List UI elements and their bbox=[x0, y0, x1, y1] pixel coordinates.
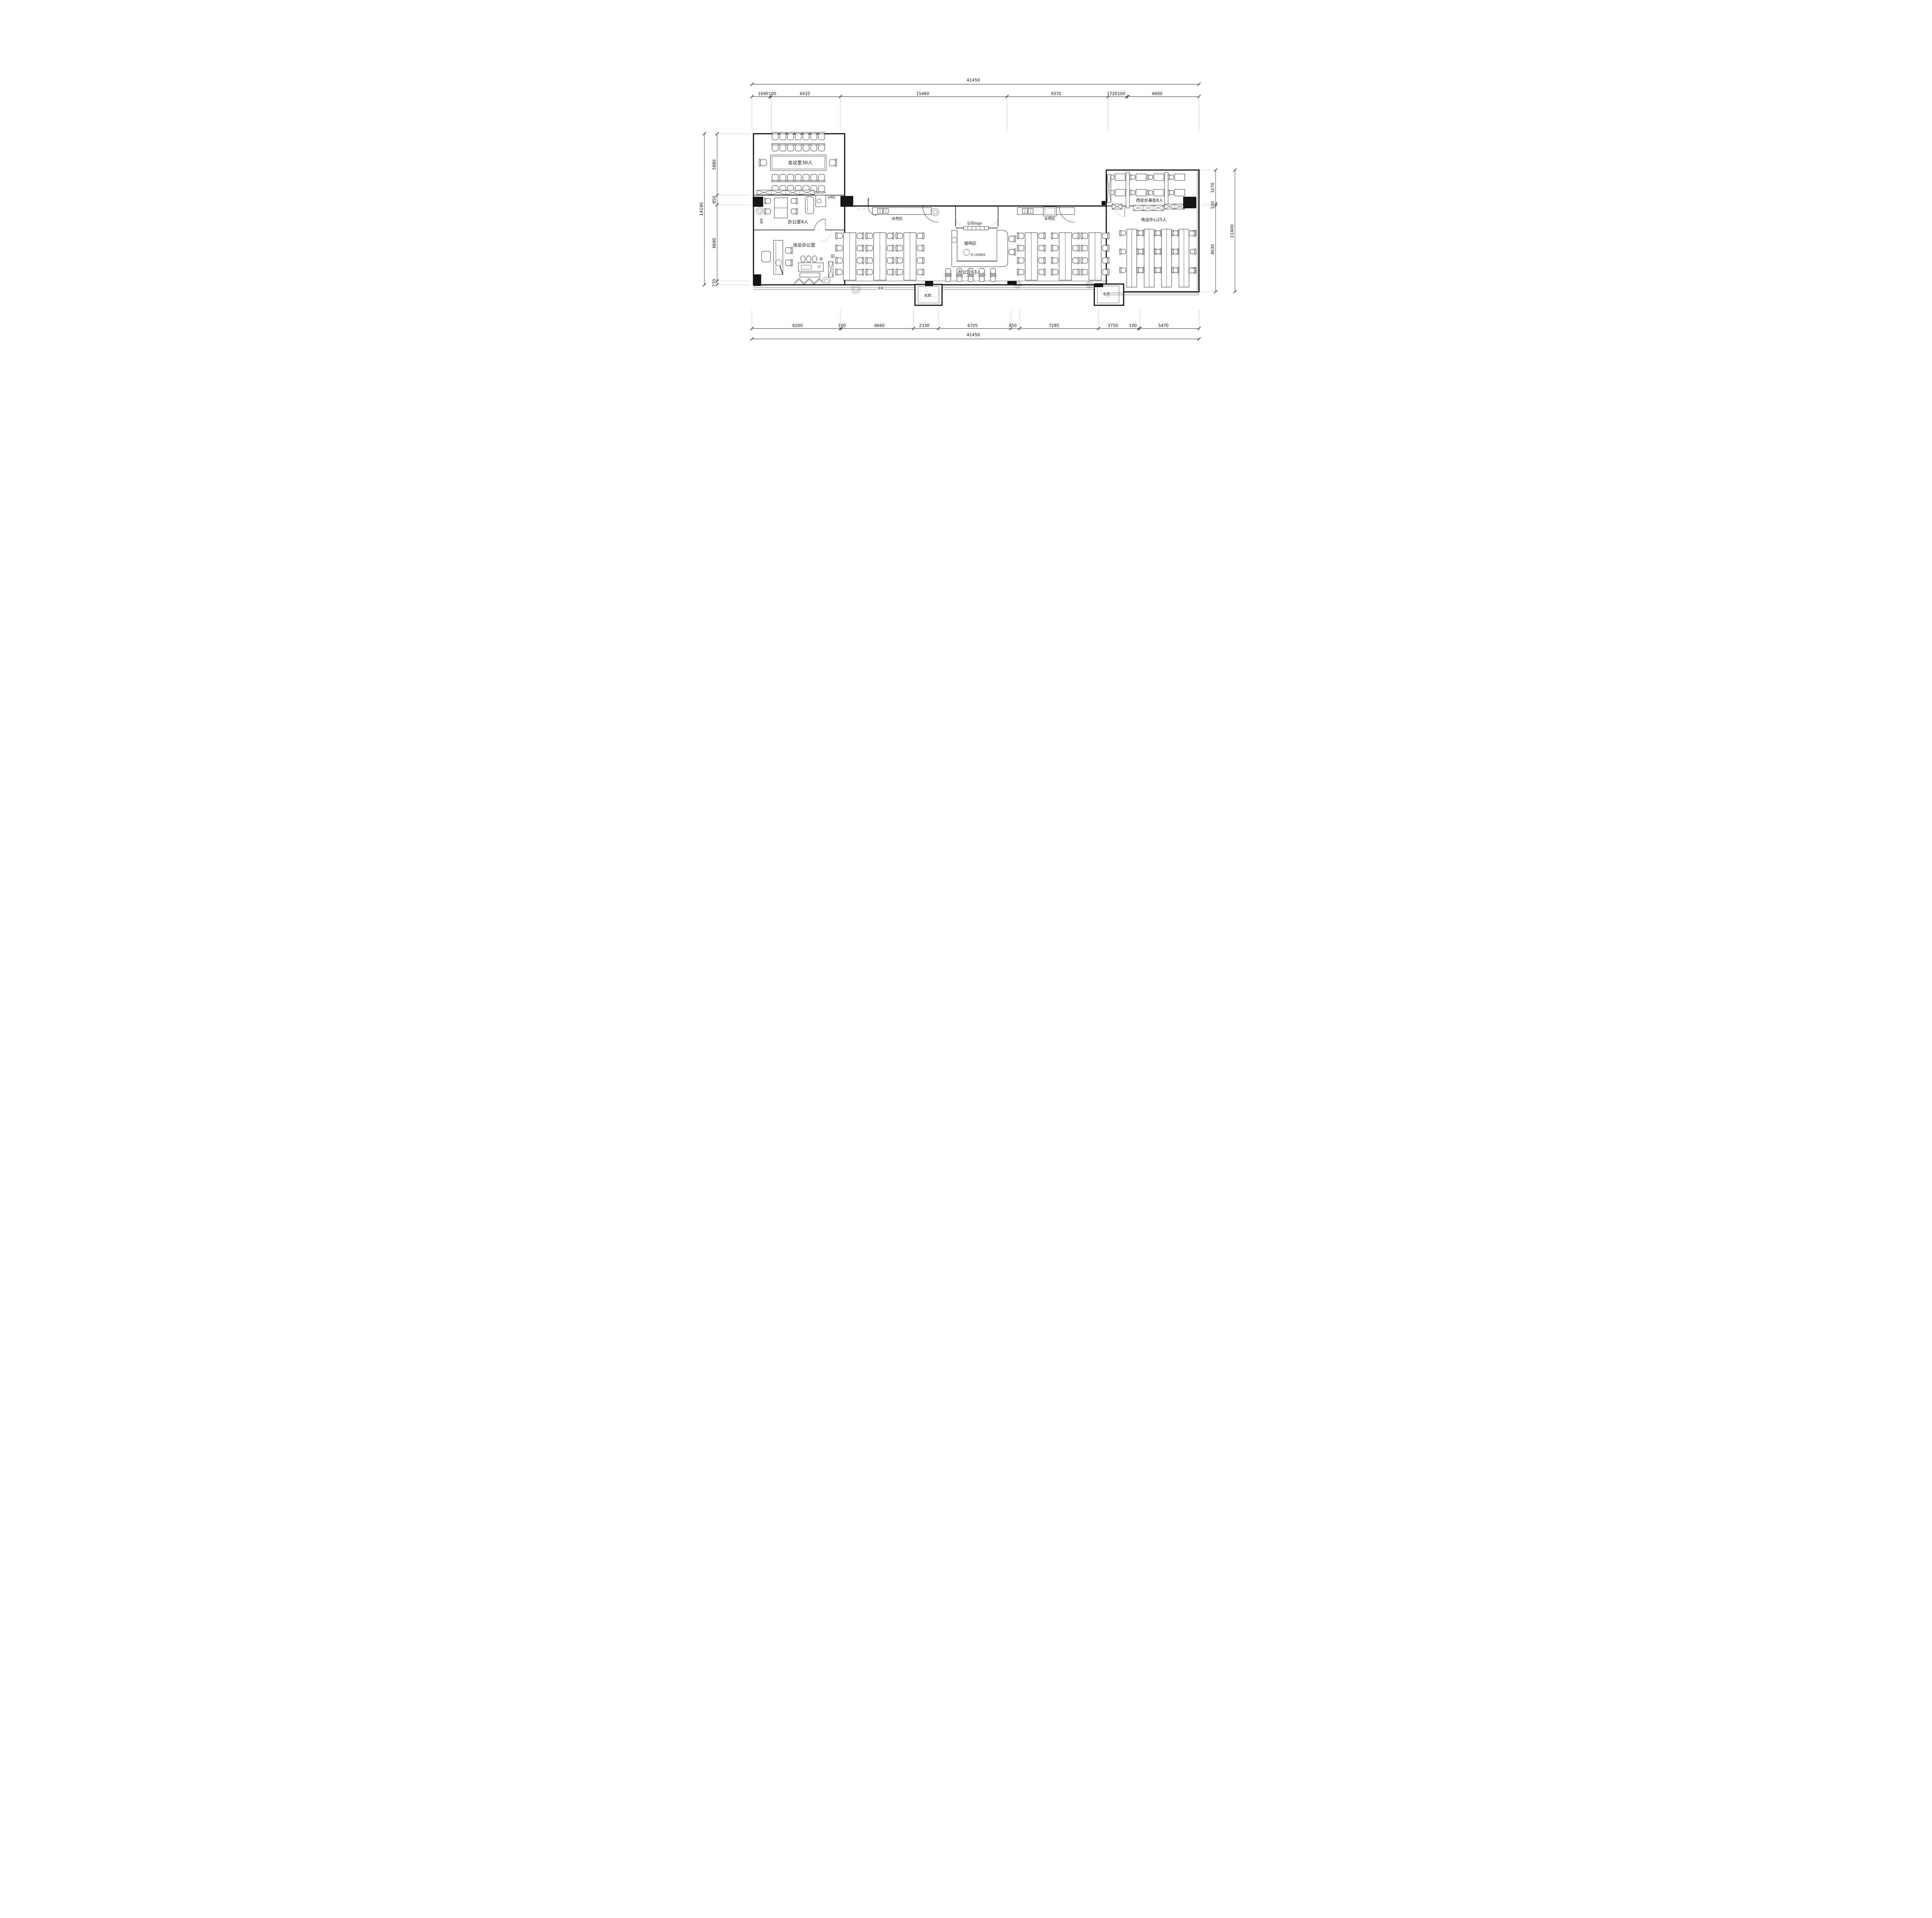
chair-back bbox=[956, 275, 963, 276]
chair bbox=[990, 269, 995, 274]
chair bbox=[1189, 268, 1194, 273]
chair bbox=[1138, 249, 1143, 254]
dim-bottom-segment-3: 2330 bbox=[919, 323, 929, 328]
chair bbox=[1053, 258, 1058, 263]
chair bbox=[1039, 258, 1044, 263]
chair bbox=[917, 258, 923, 263]
chair bbox=[772, 174, 778, 180]
chair bbox=[1121, 231, 1126, 235]
dim-bottom-segment-1: 100 bbox=[838, 323, 845, 328]
chair bbox=[897, 269, 903, 275]
chair-back bbox=[791, 247, 792, 254]
chair-back bbox=[1078, 245, 1079, 252]
desk bbox=[1175, 174, 1185, 180]
chair bbox=[979, 277, 984, 282]
sofa bbox=[762, 251, 770, 262]
chair bbox=[1019, 233, 1024, 238]
chair-back bbox=[1108, 257, 1109, 264]
chair-back bbox=[1051, 269, 1052, 276]
chair-back bbox=[945, 275, 951, 276]
chair bbox=[791, 199, 796, 204]
open-office-label: 办公区63人 bbox=[957, 269, 981, 275]
chair-back bbox=[1017, 245, 1018, 252]
chair bbox=[837, 233, 842, 238]
chair bbox=[1053, 269, 1058, 275]
chair-back bbox=[1147, 190, 1148, 196]
chair bbox=[829, 160, 835, 166]
dim-top-segment-4: 9370 bbox=[1051, 92, 1061, 96]
chair bbox=[1156, 268, 1160, 272]
chair-back bbox=[1119, 267, 1121, 273]
chair bbox=[917, 245, 923, 251]
company-logo-label: 公司logo bbox=[967, 221, 982, 226]
chair bbox=[1009, 249, 1014, 255]
dim-left-segment-3: 770 bbox=[712, 279, 717, 287]
chair-back bbox=[794, 133, 802, 134]
chair bbox=[791, 209, 796, 214]
dim-bottom-segment-0: 8200 bbox=[792, 323, 803, 328]
chair-back bbox=[771, 180, 779, 182]
chair bbox=[867, 233, 872, 238]
chair-back bbox=[1014, 249, 1015, 255]
executive-desk bbox=[774, 240, 783, 274]
low-cabinet bbox=[800, 273, 820, 277]
chair-back bbox=[1017, 257, 1018, 264]
chair-back bbox=[1078, 269, 1079, 276]
chair bbox=[946, 277, 951, 282]
chair-back bbox=[893, 233, 894, 239]
chair-back bbox=[923, 245, 924, 252]
chair-back bbox=[1195, 249, 1196, 255]
office-waterbar-label: 水吧区 bbox=[827, 196, 835, 199]
chair bbox=[1082, 258, 1088, 263]
dim-top-segment-1: 100 bbox=[768, 92, 776, 96]
landscape-bottom-label: 造景 bbox=[878, 286, 883, 290]
chair-back bbox=[1154, 230, 1155, 236]
chair bbox=[765, 209, 770, 214]
call-center-label: 电话中心25人 bbox=[1141, 217, 1167, 222]
chair bbox=[917, 269, 923, 275]
chair bbox=[887, 233, 893, 238]
chair-back bbox=[866, 233, 867, 239]
dim-bottom-segment-5: 850 bbox=[1009, 323, 1016, 328]
chair-back bbox=[794, 180, 802, 182]
chair-back bbox=[802, 144, 810, 145]
chair bbox=[837, 245, 842, 251]
column bbox=[1102, 201, 1105, 205]
chair-back bbox=[787, 133, 794, 134]
chair bbox=[1138, 268, 1143, 272]
dim-bottom-segment-6: 7285 bbox=[1049, 323, 1059, 328]
chair-back bbox=[796, 198, 797, 204]
chair-back bbox=[810, 133, 817, 134]
chair bbox=[811, 174, 817, 180]
chair-back bbox=[990, 275, 996, 276]
chair-back bbox=[893, 257, 894, 264]
chair-back bbox=[764, 208, 765, 214]
chair-back bbox=[1044, 269, 1045, 276]
chair-back bbox=[862, 233, 864, 239]
chair bbox=[1173, 249, 1178, 254]
stool bbox=[806, 256, 811, 262]
floor-plan-sheet: 4145016901006410154609370172010066008200… bbox=[668, 0, 1265, 422]
chair bbox=[968, 277, 973, 282]
chair-back bbox=[862, 269, 864, 276]
chair bbox=[1073, 233, 1078, 238]
chair bbox=[887, 245, 893, 251]
chair-back bbox=[779, 133, 786, 134]
dim-top-segment-3: 15460 bbox=[916, 92, 929, 96]
chair bbox=[957, 277, 962, 282]
chair bbox=[818, 145, 825, 151]
dim-left-segment-1: 850 bbox=[712, 196, 717, 204]
chair bbox=[887, 258, 893, 263]
chair bbox=[760, 160, 767, 166]
chair-back bbox=[771, 144, 779, 145]
chair-back bbox=[862, 257, 864, 264]
chair bbox=[1053, 245, 1058, 251]
chair-back bbox=[1147, 175, 1148, 180]
dim-bottom-segment-8: 100 bbox=[1129, 323, 1136, 328]
chair bbox=[837, 258, 842, 263]
chair bbox=[1189, 231, 1194, 236]
fridge bbox=[1043, 207, 1056, 216]
dim-right-segment-1: 100 bbox=[1211, 201, 1215, 209]
chair bbox=[1102, 245, 1108, 251]
chair bbox=[803, 134, 809, 140]
chair-back bbox=[802, 133, 810, 134]
column bbox=[1094, 283, 1103, 287]
chair-back bbox=[818, 144, 825, 145]
chair bbox=[857, 269, 862, 275]
chair bbox=[857, 245, 862, 251]
chair-back bbox=[1078, 257, 1079, 264]
chair bbox=[818, 134, 825, 140]
conference-room-label: 会议室30人 bbox=[788, 160, 812, 165]
chair-back bbox=[810, 144, 817, 145]
chair bbox=[1138, 231, 1143, 235]
chair bbox=[811, 145, 817, 151]
chair-back bbox=[1017, 269, 1018, 276]
chair bbox=[1190, 249, 1195, 254]
chair bbox=[1039, 269, 1044, 275]
chair bbox=[1173, 268, 1178, 272]
chair bbox=[857, 233, 862, 238]
chair bbox=[785, 260, 791, 266]
chair-back bbox=[923, 233, 924, 239]
chair bbox=[795, 134, 801, 140]
chair-back bbox=[1081, 257, 1082, 264]
chair-back bbox=[779, 144, 786, 145]
chair-back bbox=[764, 198, 765, 204]
chair-back bbox=[1081, 269, 1082, 276]
chair-back bbox=[968, 275, 974, 276]
desk bbox=[1115, 189, 1125, 196]
machine-room-right-label: 机房 bbox=[1103, 292, 1110, 296]
waterbar-left-label: 水吧区 bbox=[891, 216, 903, 221]
chair-back bbox=[945, 274, 951, 275]
chair-back bbox=[810, 180, 817, 182]
chair-back bbox=[990, 274, 996, 275]
chair bbox=[1156, 231, 1160, 235]
chair bbox=[787, 134, 794, 140]
chair bbox=[1156, 249, 1160, 254]
chair-back bbox=[1137, 249, 1138, 255]
chair bbox=[1121, 268, 1126, 272]
chair-back bbox=[1044, 257, 1045, 264]
chair-back bbox=[787, 144, 794, 145]
dim-bottom-segment-2: 6660 bbox=[874, 323, 884, 328]
chair-back bbox=[1078, 233, 1079, 239]
chair bbox=[765, 199, 770, 204]
chair-back bbox=[862, 245, 864, 252]
chair bbox=[887, 269, 893, 275]
chair-back bbox=[791, 259, 792, 266]
waterbar-right-label: 水吧区 bbox=[1044, 216, 1055, 221]
chair-back bbox=[1154, 267, 1155, 273]
chair-back bbox=[866, 269, 867, 276]
stool bbox=[812, 256, 817, 262]
dim-bottom-segment-4: 6705 bbox=[967, 323, 978, 328]
chair-back bbox=[794, 144, 802, 145]
reception-label: 接待区 bbox=[964, 241, 976, 246]
chair bbox=[1019, 269, 1024, 275]
dim-top-segment-7: 6600 bbox=[1152, 92, 1162, 96]
chair-back bbox=[1044, 233, 1045, 239]
chair-back bbox=[802, 180, 810, 182]
chair bbox=[787, 174, 794, 180]
chair bbox=[1082, 269, 1088, 275]
chair-back bbox=[1172, 267, 1173, 273]
chair bbox=[1169, 175, 1173, 179]
chair bbox=[1073, 258, 1078, 263]
plant bbox=[852, 285, 860, 293]
chair-back bbox=[866, 245, 867, 252]
chair-back bbox=[1108, 245, 1109, 252]
chair bbox=[787, 145, 794, 151]
chair bbox=[1121, 249, 1126, 254]
chair bbox=[1148, 175, 1153, 179]
column bbox=[925, 281, 933, 286]
chair-back bbox=[893, 245, 894, 252]
chair-back bbox=[979, 275, 985, 276]
chair-back bbox=[818, 192, 825, 193]
chair-back bbox=[1137, 230, 1138, 236]
chair-back bbox=[1081, 233, 1082, 239]
workstation-panel bbox=[1165, 172, 1168, 208]
chair bbox=[772, 134, 778, 140]
chair-back bbox=[1129, 190, 1131, 196]
dim-bottom-segment-7: 3750 bbox=[1107, 323, 1118, 328]
chair bbox=[867, 258, 872, 263]
chair bbox=[897, 233, 903, 238]
dim-left-segment-0: 5880 bbox=[712, 160, 717, 170]
dim-bottom-total: 41450 bbox=[966, 332, 980, 337]
chair-back bbox=[1119, 249, 1121, 255]
chair-back bbox=[1051, 233, 1052, 239]
chair bbox=[1169, 191, 1173, 195]
chair bbox=[803, 174, 809, 180]
desk bbox=[1154, 189, 1164, 196]
machine-room-left-label: 机房 bbox=[924, 293, 931, 298]
dim-top-segment-5: 1720 bbox=[1107, 92, 1117, 96]
dim-top-segment-0: 1690 bbox=[758, 92, 768, 96]
chair-back bbox=[779, 180, 786, 182]
sofa bbox=[805, 197, 814, 214]
chair bbox=[1019, 258, 1024, 263]
xian-office-label: 西安办事处8人 bbox=[1136, 198, 1163, 203]
chair bbox=[867, 245, 872, 251]
chair-back bbox=[1108, 269, 1109, 276]
desk bbox=[1115, 174, 1125, 180]
chair-back bbox=[759, 159, 760, 167]
chair bbox=[1039, 245, 1044, 251]
chair-back bbox=[896, 245, 897, 252]
chair-back bbox=[1051, 245, 1052, 252]
chair bbox=[1009, 236, 1014, 242]
chair bbox=[867, 269, 872, 275]
workstation-panel bbox=[1126, 172, 1129, 208]
chair-back bbox=[787, 180, 794, 182]
dim-left-total: 14190 bbox=[699, 203, 704, 216]
chair-back bbox=[1194, 230, 1195, 237]
desk bbox=[1154, 174, 1164, 180]
column bbox=[840, 196, 853, 207]
chair-back bbox=[1044, 245, 1045, 252]
chair bbox=[803, 145, 809, 151]
chair-back bbox=[1172, 249, 1173, 255]
chair-back bbox=[818, 133, 825, 134]
chair bbox=[1131, 191, 1135, 195]
staff-display-label: 员工风采展示 bbox=[970, 253, 986, 256]
chair-back bbox=[1051, 257, 1052, 264]
chair bbox=[795, 145, 801, 151]
chair-back bbox=[1081, 245, 1082, 252]
chair bbox=[772, 145, 778, 151]
chair bbox=[811, 134, 817, 140]
chair bbox=[1053, 233, 1058, 238]
dim-top-segment-2: 6410 bbox=[799, 92, 810, 96]
chair-back bbox=[1108, 233, 1109, 239]
landscape-left-label: 造景 bbox=[760, 218, 763, 224]
dim-right-segment-0: 3270 bbox=[1211, 183, 1215, 193]
column bbox=[1007, 281, 1017, 285]
chair bbox=[857, 258, 862, 263]
chair-back bbox=[1168, 175, 1169, 180]
chair-back bbox=[818, 180, 825, 182]
chair-back bbox=[1172, 230, 1173, 236]
dim-right-total: 11400 bbox=[1230, 225, 1235, 238]
manager-office-label: 张总办公室 bbox=[793, 242, 815, 248]
chair bbox=[795, 174, 801, 180]
chair-back bbox=[835, 245, 837, 252]
chair-back bbox=[923, 269, 924, 276]
chair-back bbox=[893, 269, 894, 276]
column bbox=[753, 274, 761, 286]
dim-bottom-segment-9: 5470 bbox=[1158, 323, 1168, 328]
chair bbox=[780, 134, 786, 140]
chair-back bbox=[1014, 236, 1015, 242]
dim-top-segment-6: 100 bbox=[1117, 92, 1125, 96]
chair bbox=[917, 233, 923, 238]
chair bbox=[780, 145, 786, 151]
floor-plan-canvas: 4145016901006410154609370172010066008200… bbox=[668, 0, 1265, 422]
chair bbox=[897, 258, 903, 263]
desk bbox=[1175, 189, 1185, 196]
chair-back bbox=[896, 233, 897, 239]
chair-back bbox=[771, 133, 779, 134]
dim-top-total: 41450 bbox=[966, 78, 980, 83]
chair bbox=[818, 186, 825, 192]
chair-back bbox=[896, 257, 897, 264]
chair bbox=[946, 269, 951, 274]
chair-back bbox=[796, 208, 797, 214]
chair-back bbox=[923, 257, 924, 264]
chair bbox=[1173, 231, 1178, 235]
chair bbox=[818, 174, 825, 180]
chair bbox=[837, 269, 842, 275]
chair-back bbox=[835, 233, 837, 239]
chair bbox=[1102, 233, 1108, 238]
column bbox=[1183, 197, 1196, 208]
kitchen-counter bbox=[816, 195, 826, 207]
console-table bbox=[798, 263, 823, 271]
chair-back bbox=[1154, 249, 1155, 255]
chair bbox=[1039, 233, 1044, 238]
column bbox=[753, 197, 763, 207]
chair bbox=[1073, 245, 1078, 251]
chair-back bbox=[866, 257, 867, 264]
chair-back bbox=[1129, 175, 1131, 180]
chair bbox=[897, 245, 903, 251]
chair bbox=[1102, 269, 1108, 275]
chair bbox=[785, 248, 791, 254]
chair bbox=[1019, 245, 1024, 251]
chair-back bbox=[835, 159, 837, 167]
chair-back bbox=[1194, 267, 1195, 274]
office-4p-label: 办公室4人 bbox=[787, 219, 808, 225]
chair-back bbox=[835, 269, 837, 276]
chair-back bbox=[835, 257, 837, 264]
dim-left-segment-2: 6690 bbox=[712, 238, 717, 248]
chair bbox=[1148, 191, 1153, 195]
dim-right-segment-2: 8030 bbox=[1211, 244, 1215, 255]
chair-back bbox=[1119, 230, 1121, 236]
chair-back bbox=[1137, 267, 1138, 273]
stool bbox=[801, 256, 805, 262]
chair bbox=[1102, 258, 1108, 263]
chair-back bbox=[1017, 233, 1018, 239]
chair bbox=[1082, 233, 1088, 238]
desk bbox=[1136, 189, 1146, 196]
chair bbox=[780, 174, 786, 180]
chair bbox=[990, 277, 995, 282]
chair-back bbox=[896, 269, 897, 276]
chair bbox=[1131, 175, 1135, 179]
chair-back bbox=[1168, 190, 1169, 196]
desk bbox=[1136, 174, 1146, 180]
chair bbox=[1082, 245, 1088, 251]
chair bbox=[1073, 269, 1078, 275]
